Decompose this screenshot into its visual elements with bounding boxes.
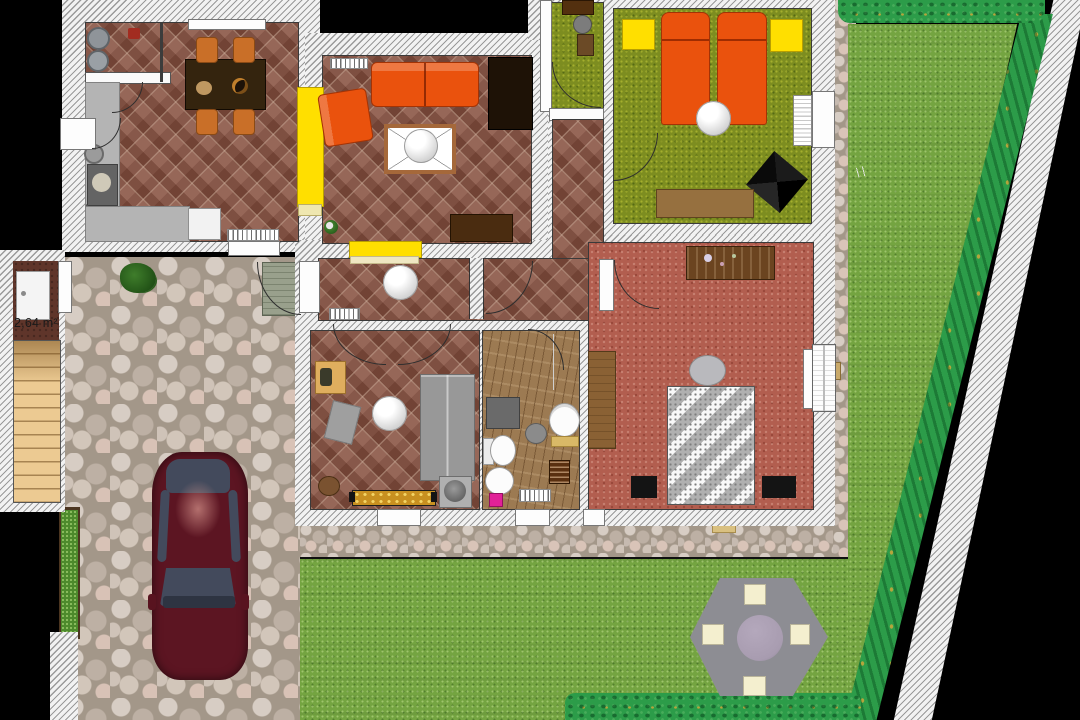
nightstand-se-right[interactable] [762,476,796,498]
front-door-opening[interactable] [299,261,320,313]
towel-gold [551,436,579,447]
table-plate [196,81,212,95]
patio-chair-west[interactable] [702,624,724,645]
living-ceiling-lamp [404,129,438,163]
bedroom-ne-ceiling-lamp [696,101,731,136]
utility-east-opening [58,261,72,313]
bench-gold[interactable] [352,490,436,506]
window-box-se-east [812,344,836,412]
sideboard-south[interactable] [450,214,513,242]
car-roof-highlight [175,480,221,538]
nightstand-ne-right[interactable] [770,19,803,52]
window-south-3 [583,509,605,526]
shelf-ne-east [793,95,812,146]
desk-se[interactable] [588,351,616,449]
floor-plan-canvas: 2,64 m² [0,0,1080,720]
corridor-desk[interactable] [562,0,594,15]
bathroom-sink[interactable] [549,403,580,437]
bathroom-stool[interactable] [525,423,547,444]
kitchen-window-north [188,19,266,30]
stove-burner [92,173,111,192]
armchair[interactable] [317,87,374,147]
hedge-top-row [838,0,1045,23]
bathroom-radiator [519,489,551,502]
window-south-1 [377,509,421,526]
bed-se[interactable] [667,386,755,505]
stairs[interactable] [13,340,61,503]
bench-ne[interactable] [656,189,754,218]
dining-chair-1[interactable] [196,37,218,63]
window-south-2 [515,509,550,526]
corridor-drawer[interactable] [577,34,594,56]
dining-chair-2[interactable] [233,37,255,63]
utility-door-knob [21,291,26,296]
window-box-ne-east [812,91,835,148]
dresser-flowers [704,254,712,262]
area-label: 2,64 m² [14,316,64,332]
table-fruit-bowl [232,78,248,94]
hall-partition-wall [469,258,484,319]
dishwasher[interactable] [188,208,221,240]
kitchen-window-box-west [60,118,96,150]
living-radiator [330,58,368,69]
washing-machine-drum [444,480,466,502]
toilet[interactable] [490,435,516,466]
dresser-se[interactable] [686,246,775,280]
hall-ceiling-lamp [383,265,418,300]
patio-round-table[interactable] [737,615,783,661]
study-desk-chair [320,368,332,386]
potted-plant[interactable] [324,220,338,234]
bidet[interactable] [485,467,514,495]
hall-bench-seat [350,256,419,264]
corridor-chair[interactable] [573,15,592,34]
shower-tray[interactable] [486,397,520,429]
garden-path-south [300,524,856,559]
bush[interactable] [120,263,156,293]
wardrobe[interactable] [420,374,475,481]
hedge-bottom-row [565,693,861,720]
pantry-red-item[interactable] [128,28,140,39]
patio-chair-south[interactable] [743,676,766,696]
hall-floor [318,258,610,321]
tv-cabinet[interactable] [488,57,533,130]
hall-radiator [329,308,360,320]
vestibule-floor [552,119,604,261]
study-ceiling-lamp [372,396,407,431]
sofa[interactable] [371,62,479,107]
pantry-wall-v [160,22,163,82]
car-front-grille [163,596,235,608]
front-door-threshold [228,241,280,256]
towel-ladder[interactable] [549,460,570,484]
planter-strip-west [59,507,80,639]
laundry-machine-2[interactable] [87,50,109,72]
nightstand-ne-left[interactable] [622,19,655,50]
car-mirror-right [241,594,249,610]
wall-stub-southwest [50,632,78,720]
corridor-west-wall [540,0,552,112]
bench-gold-leg-left [349,492,355,502]
nightstand-se-left[interactable] [631,476,657,498]
pink-bin[interactable] [489,493,503,507]
dining-chair-3[interactable] [196,109,218,135]
laundry-machine-1[interactable] [87,27,110,50]
kitchen-counter-south[interactable] [85,206,190,242]
dining-chair-4[interactable] [233,109,255,135]
kitchen-radiator [227,229,279,241]
study-stool[interactable] [318,476,340,496]
bedroom-se-door-opening[interactable] [599,259,614,311]
bench-gold-leg-right [431,492,437,502]
car-mirror-left [148,594,156,610]
shelf-pale [298,204,322,216]
table-oval-se[interactable] [689,355,726,386]
patio-chair-north[interactable] [744,584,766,605]
patio-chair-east[interactable] [790,624,810,645]
